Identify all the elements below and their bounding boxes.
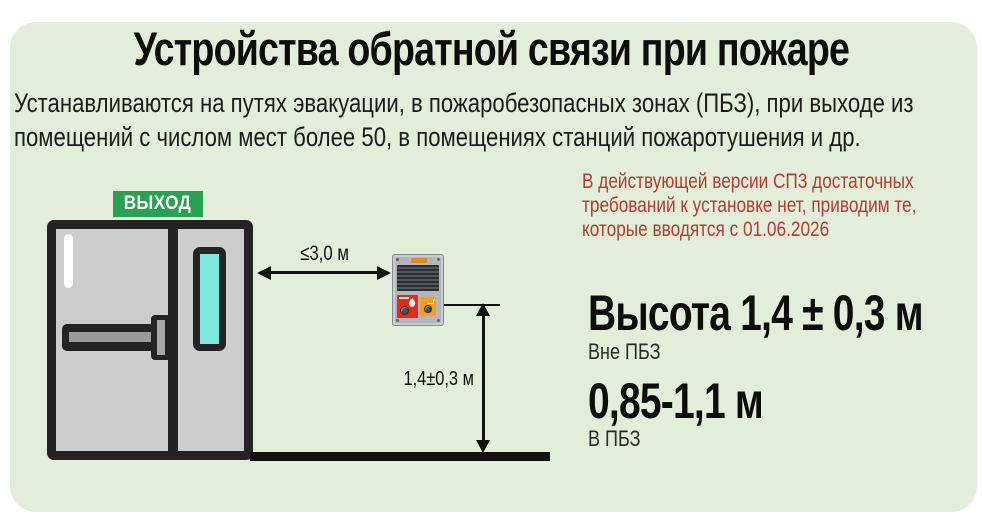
floor-line <box>250 452 550 461</box>
screw-icon <box>396 319 399 322</box>
device-fire-button <box>397 295 418 318</box>
height-outside-pbz-caption: Вне ПБЗ <box>588 340 676 364</box>
height-outside-pbz-value: Высота 1,4 ± 0,3 м <box>588 288 982 338</box>
horizontal-distance-arrow <box>257 266 391 280</box>
screw-icon <box>396 258 399 261</box>
arrow-right-head-icon <box>377 266 391 280</box>
vertical-height-arrow <box>476 303 490 453</box>
height-inside-pbz-caption: В ПБЗ <box>588 427 652 451</box>
exit-sign: ВЫХОД <box>113 191 203 217</box>
arrow-down-head-icon <box>476 440 490 453</box>
screw-icon <box>437 319 440 322</box>
call-button-knob <box>424 305 432 313</box>
page-title: Устройства обратной связи при пожаре <box>133 24 849 74</box>
regulation-note-line-1: В действующей версии СП3 достаточных <box>582 170 914 194</box>
call-button-mark-icon <box>427 299 434 304</box>
exit-sign-label: ВЫХОД <box>124 193 192 215</box>
feedback-device <box>392 254 444 326</box>
subtitle: Устанавливаются на путях эвакуации, в по… <box>14 86 982 154</box>
door-window <box>193 247 226 351</box>
device-brand-label <box>411 258 427 263</box>
regulation-note: В действующей версии СП3 достаточных тре… <box>582 170 982 242</box>
regulation-note-line-3: которые вводятся с 01.06.2026 <box>582 218 829 242</box>
page-title-wrap: Устройства обратной связи при пожаре <box>0 24 982 74</box>
door-push-bar-inner <box>69 332 152 342</box>
arrow-line <box>267 271 381 274</box>
door-push-bar <box>62 324 160 351</box>
subtitle-line-1: Устанавливаются на путях эвакуации, в по… <box>14 86 914 120</box>
door-highlight <box>64 234 73 288</box>
regulation-note-line-2: требований к установке нет, приводим те, <box>582 194 916 218</box>
device-height-connector-line <box>444 304 500 306</box>
device-call-button <box>420 297 436 316</box>
fire-button-knob <box>400 306 409 315</box>
horizontal-distance-label: ≤3,0 м <box>252 242 396 266</box>
device-speaker-grille <box>397 265 439 291</box>
arrow-line <box>482 313 485 443</box>
flame-icon <box>408 297 416 307</box>
vertical-height-label: 1,4±0,3 м <box>368 368 474 391</box>
height-inside-pbz-value: 0,85-1,1 м <box>588 376 812 426</box>
door-illustration <box>47 220 253 460</box>
door-push-bar-mount <box>151 315 171 360</box>
subtitle-line-2: помещений с числом мест более 50, в поме… <box>14 120 861 154</box>
infographic-canvas: Устройства обратной связи при пожаре Уст… <box>0 0 982 518</box>
screw-icon <box>437 258 440 261</box>
door-push-bar-mount-inner <box>157 320 165 355</box>
